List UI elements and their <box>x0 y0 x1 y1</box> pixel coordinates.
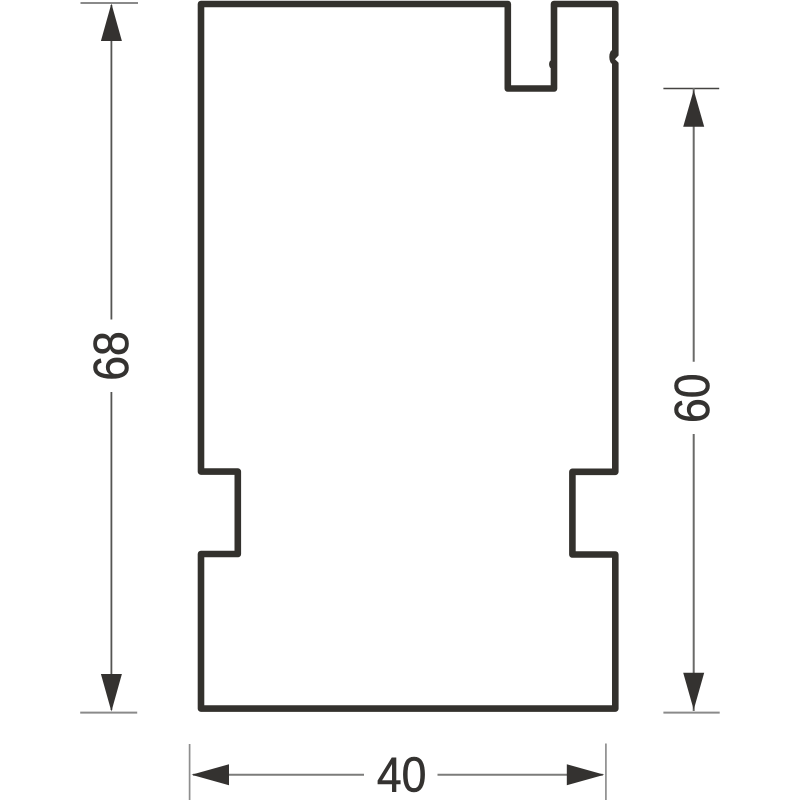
svg-text:68: 68 <box>85 331 139 381</box>
svg-text:60: 60 <box>666 374 720 424</box>
svg-text:40: 40 <box>377 748 427 800</box>
